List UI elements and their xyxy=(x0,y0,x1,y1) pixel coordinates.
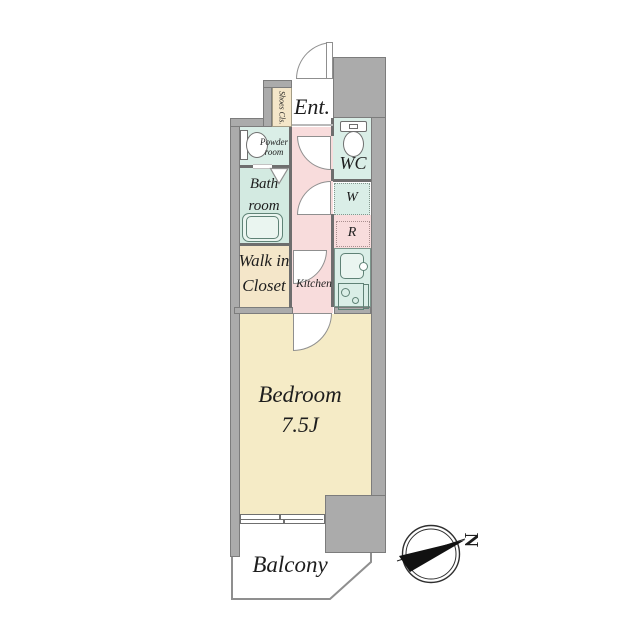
walk-in-closet-text-1: Walk in xyxy=(234,249,294,274)
label-shoes-closet: Shoes Cls. xyxy=(272,89,292,126)
label-walk-in-closet: Walk in Closet xyxy=(234,251,294,297)
shoes-closet-text: Shoes Cls. xyxy=(277,91,286,124)
bedroom-size-text: 7.5J xyxy=(250,412,350,437)
powder-room-text-2: room xyxy=(256,147,292,157)
label-entrance: Ent. xyxy=(288,93,336,120)
balcony-text: Balcony xyxy=(238,552,342,578)
label-kitchen: Kitchen xyxy=(294,277,334,293)
bedroom-text: Bedroom xyxy=(250,382,350,408)
label-washer: W xyxy=(338,188,366,208)
washer-text: W xyxy=(338,190,366,206)
label-bedroom: Bedroom xyxy=(250,381,350,409)
label-wc: WC xyxy=(336,152,370,174)
label-refrigerator: R xyxy=(338,223,366,243)
walk-in-closet-text-2: Closet xyxy=(234,274,294,299)
label-compass-north: N xyxy=(459,528,483,552)
refrigerator-text: R xyxy=(338,225,366,241)
compass-north-text: N xyxy=(460,528,483,552)
label-bedroom-size: 7.5J xyxy=(250,411,350,439)
floor-plan: Ent. Shoes Cls. Powder room WC W R Bath … xyxy=(0,0,640,640)
bath-room-text-1: Bath xyxy=(238,174,290,196)
label-bath-room: Bath room xyxy=(238,173,290,219)
kitchen-text: Kitchen xyxy=(294,278,334,291)
powder-room-text-1: Powder xyxy=(256,137,292,147)
bath-room-text-2: room xyxy=(238,196,290,218)
wc-text: WC xyxy=(336,153,370,174)
label-balcony: Balcony xyxy=(238,551,342,579)
entrance-text: Ent. xyxy=(288,94,336,119)
label-powder-room: Powder room xyxy=(256,135,292,159)
